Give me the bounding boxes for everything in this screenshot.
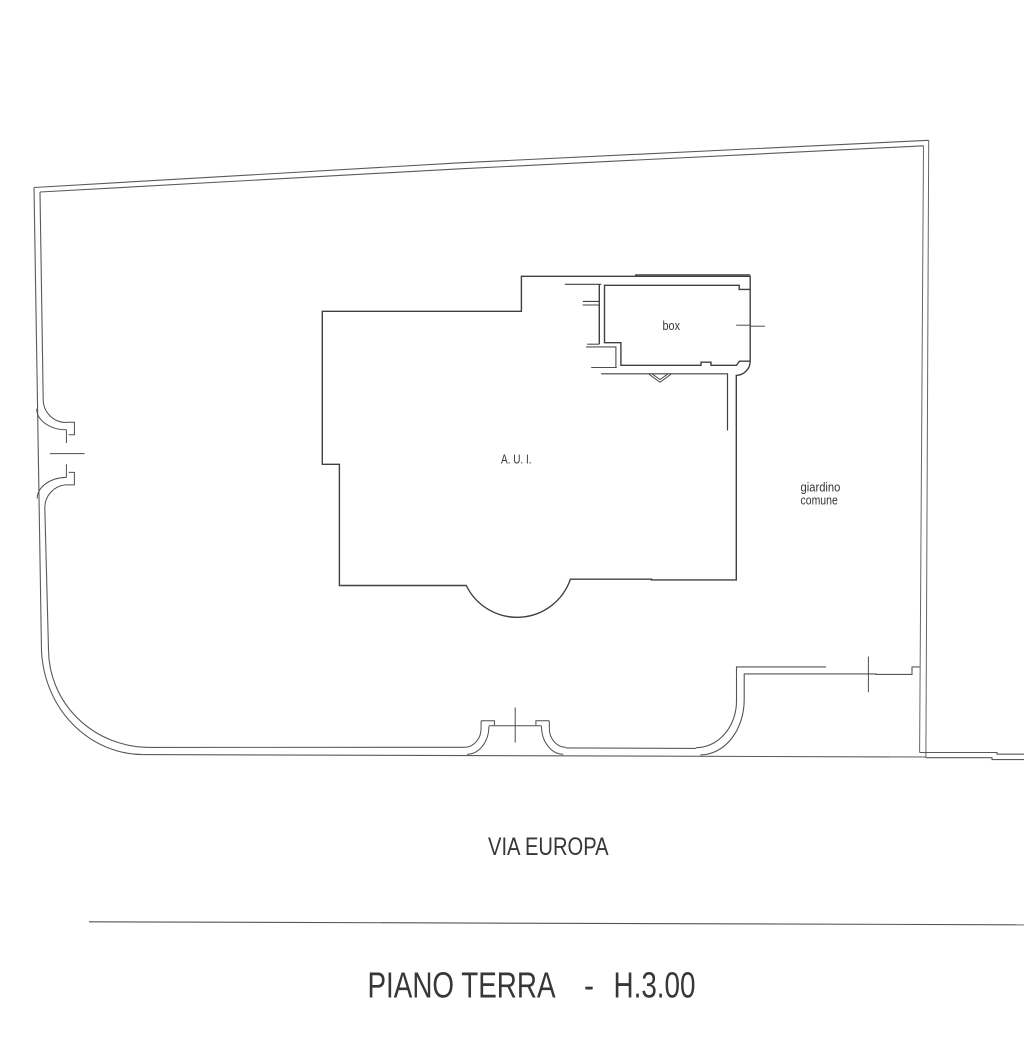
svg-text:VIA EUROPA: VIA EUROPA [488, 834, 609, 861]
svg-text:comune: comune [801, 493, 838, 507]
svg-text:A. U. I.: A. U. I. [501, 452, 532, 466]
svg-text:-: - [584, 964, 594, 1005]
svg-text:box: box [663, 319, 681, 333]
svg-text:PIANO TERRA: PIANO TERRA [368, 964, 557, 1005]
svg-text:H.3.00: H.3.00 [614, 964, 696, 1005]
